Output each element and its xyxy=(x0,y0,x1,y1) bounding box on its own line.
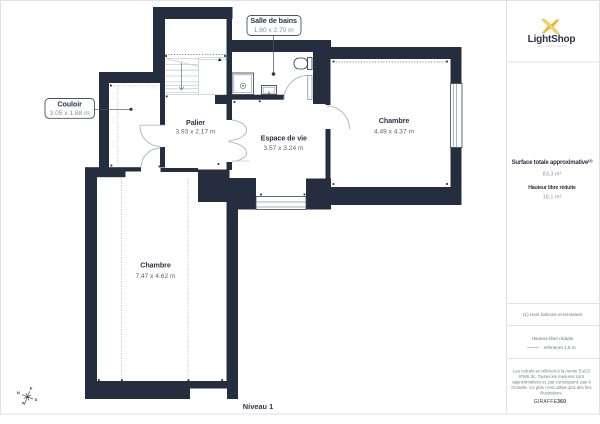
svg-text:Niveau 1: Niveau 1 xyxy=(243,402,273,411)
svg-text:IPMS 3c. Toutes les mesures so: IPMS 3c. Toutes les mesures sont xyxy=(519,374,585,379)
svg-text:Les calculs se réfèrent à la n: Les calculs se réfèrent à la norme EuCS xyxy=(513,369,590,374)
svg-text:Surface totale approximative⁽¹: Surface totale approximative⁽¹⁾ xyxy=(512,159,594,166)
svg-text:Couloir: Couloir xyxy=(57,100,82,109)
svg-text:GIRAFFE360: GIRAFFE360 xyxy=(534,399,567,405)
svg-text:illustratives.: illustratives. xyxy=(540,391,562,396)
svg-text:7.47 x 4.62 m: 7.47 x 4.62 m xyxy=(136,273,176,280)
svg-text:l'échelle. Ce plan n'est utili: l'échelle. Ce plan n'est utilisé qu'à de… xyxy=(511,385,591,390)
svg-text:N: N xyxy=(17,390,20,395)
svg-text:83,3 m²: 83,3 m² xyxy=(543,172,562,178)
svg-text:Hauteur libre réduite: Hauteur libre réduite xyxy=(532,336,574,341)
svg-text:LightShop: LightShop xyxy=(528,34,576,45)
svg-text:Chambre: Chambre xyxy=(140,261,171,270)
svg-text:S: S xyxy=(35,397,38,402)
svg-text:16,1 m²: 16,1 m² xyxy=(543,195,562,201)
svg-text:Chambre: Chambre xyxy=(379,116,410,125)
svg-text:(1) Hors balcons et terrasses: (1) Hors balcons et terrasses xyxy=(523,312,583,317)
svg-text:Inférieure 1,5 m: Inférieure 1,5 m xyxy=(544,345,576,350)
svg-text:3.93 x 2.17 m: 3.93 x 2.17 m xyxy=(176,129,216,136)
svg-text:Hauteur libre réduite: Hauteur libre réduite xyxy=(528,185,576,191)
svg-text:3.05 x 1.88 m: 3.05 x 1.88 m xyxy=(50,110,90,117)
svg-text:W: W xyxy=(22,401,26,406)
svg-text:3.57 x 3.24 m: 3.57 x 3.24 m xyxy=(264,145,304,152)
svg-text:Espace de vie: Espace de vie xyxy=(261,134,307,143)
svg-text:Salle de bains: Salle de bains xyxy=(250,16,297,25)
svg-text:REAL ESTATE MEDIA: REAL ESTATE MEDIA xyxy=(537,45,566,48)
svg-text:Palier: Palier xyxy=(186,118,205,127)
svg-text:approximatives et, par conséqu: approximatives et, par conséquent, pas à xyxy=(512,380,591,385)
svg-text:4.49 x 4.37 m: 4.49 x 4.37 m xyxy=(374,129,414,136)
svg-text:E: E xyxy=(30,386,33,391)
svg-text:1.60 x 2.70 m: 1.60 x 2.70 m xyxy=(254,27,294,34)
